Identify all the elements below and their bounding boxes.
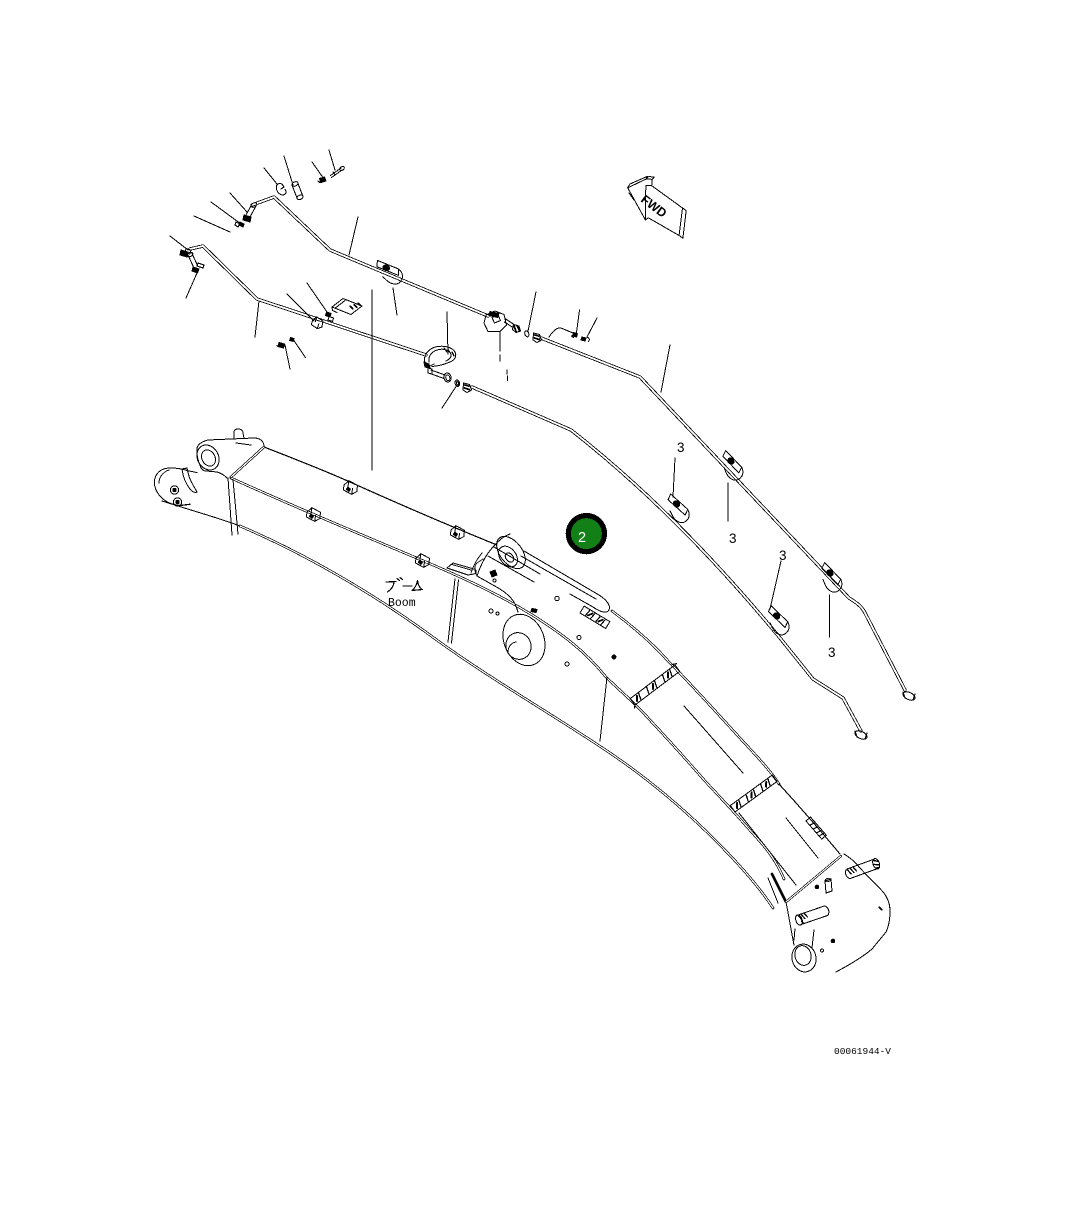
- svg-text:3: 3: [779, 548, 787, 563]
- svg-text:00061944-V: 00061944-V: [834, 1046, 891, 1057]
- svg-text:3: 3: [677, 440, 685, 455]
- svg-text:3: 3: [729, 531, 737, 546]
- svg-text:2: 2: [578, 530, 586, 546]
- svg-text:Boom: Boom: [388, 597, 416, 610]
- svg-text:3: 3: [828, 645, 836, 660]
